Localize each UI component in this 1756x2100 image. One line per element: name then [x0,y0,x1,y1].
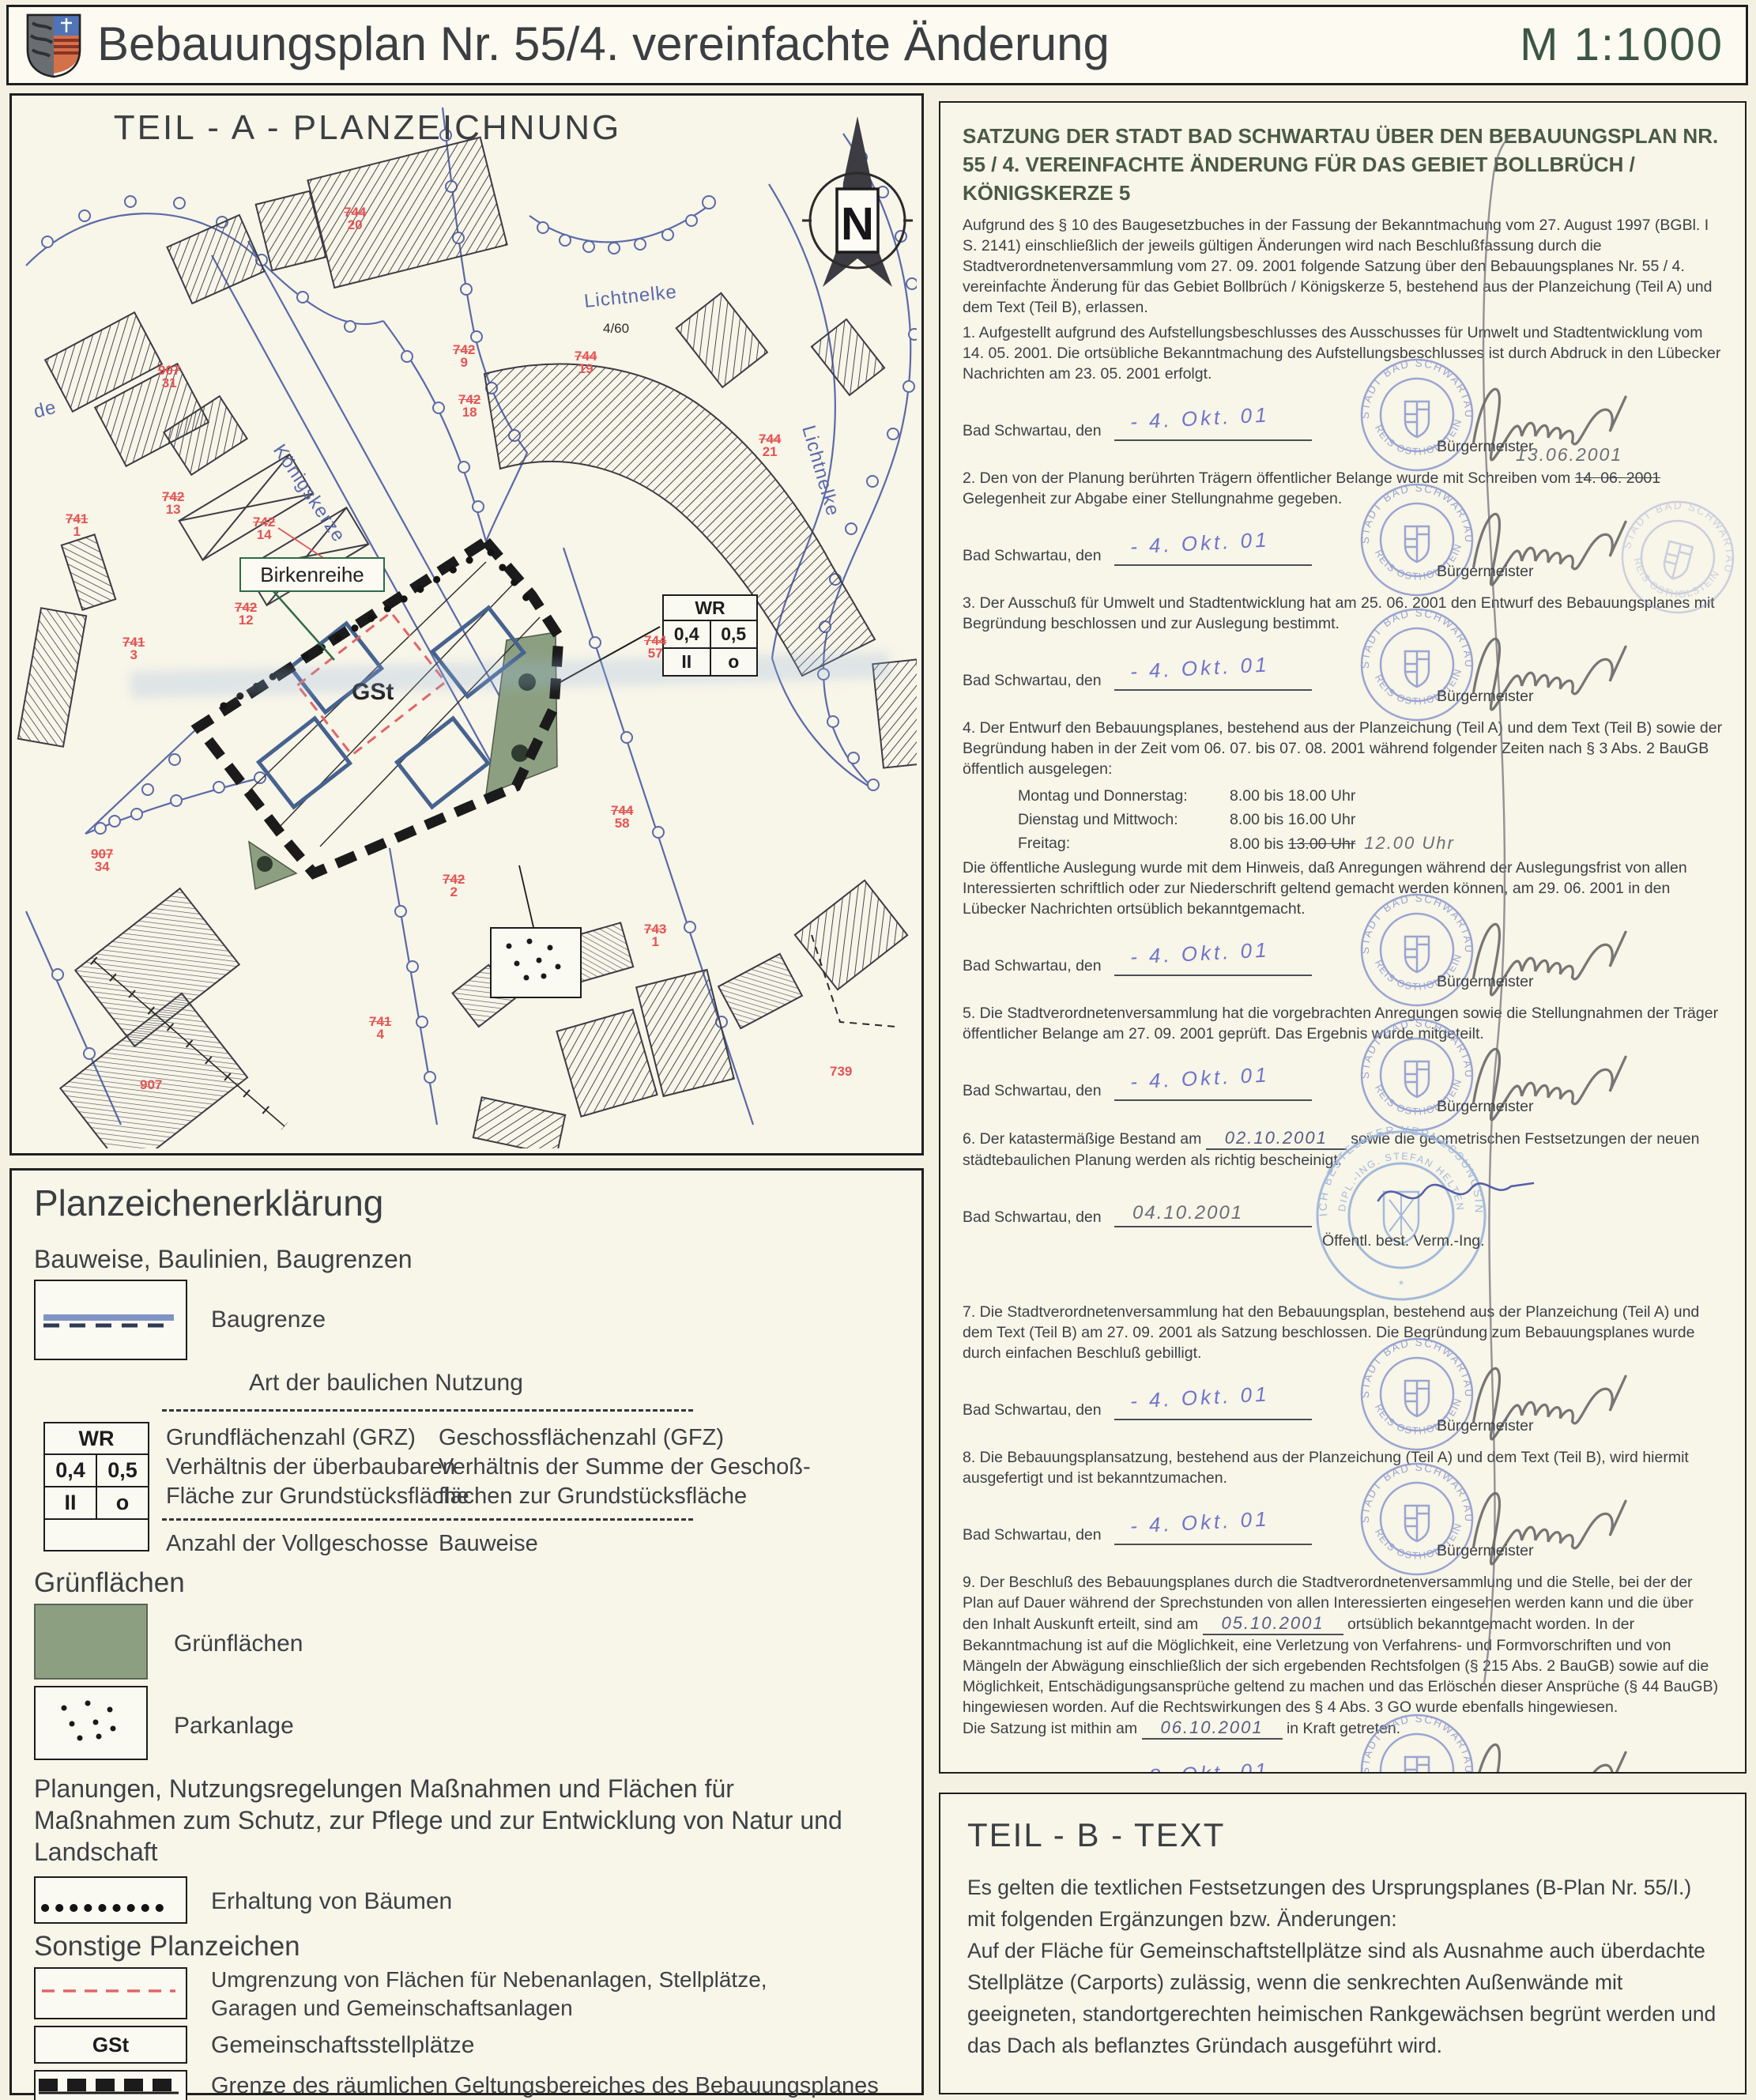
date-line [1114,439,1312,441]
opening-times: Montag und Donnerstag:8.00 bis 18.00 Uhr… [1018,784,1723,856]
parkanlage-symbol [34,1686,148,1760]
park-callout [519,865,533,927]
wr-bauweise: o [711,649,757,675]
parcel-label: 7413 [122,636,145,662]
document-title: Bebauungsplan Nr. 55/4. vereinfachte Änd… [97,17,1110,71]
north-letter: N [841,198,874,250]
legend-panel: Planzeichenerklärung Bauweise, Baulinien… [9,1168,924,2095]
signature-scrawl [1453,1722,1747,1774]
signature-block-1: Bad Schwartau, den - 4. Okt. 01 Bürgerme… [963,389,1723,460]
birkenreihe-callout [273,590,334,660]
erhaltung-symbol [34,1876,187,1924]
parcel-label: 74218 [458,394,480,419]
parcel-label: 90734 [91,848,113,873]
baugrenze-symbol [34,1280,187,1360]
parcel-label: 74212 [235,601,257,627]
teil-b-body-1: Es gelten die textlichen Festsetzungen d… [967,1872,1718,1935]
satzung-panel: SATZUNG DER STADT BAD SCHWARTAU ÜBER DEN… [939,101,1747,1774]
wr-grz: 0,4 [664,621,711,647]
place-date-label: Bad Schwartau, den [963,422,1102,440]
handwritten-date: - 4. Okt. 01 [1129,1382,1270,1413]
parcel-label: 74213 [162,491,184,516]
parkanlage-area [490,927,582,998]
art-der-nutzung-label: Art der baulichen Nutzung [249,1370,523,1397]
street-label-lichtnelke-top: Lichtnelke [583,281,678,312]
surveyor-stamp [1310,1125,1492,1306]
bauweise-label: Bauweise [439,1531,538,1557]
handwritten-date: - 4. Okt. 01 [1129,652,1270,684]
handwritten-date: - 4. Okt. 01 [1129,527,1270,559]
planungen-heading: Planungen, Nutzungsregelungen Maßnahmen … [34,1773,872,1868]
north-arrow-icon: N [802,116,913,287]
parcel-label: 7429 [453,344,475,369]
parkanlage-label: Parkanlage [174,1713,294,1740]
wr-table-map: WR 0,40,5 IIo [662,594,758,677]
umgrenzung-symbol [34,1967,187,2019]
wr-storeys: II [664,649,711,675]
parcel-label: 7411 [66,513,88,538]
handwritten-note: 13.06.2001 [1516,444,1622,466]
baugrenze-squares [258,608,523,807]
parcel-label: 74420 [344,206,366,232]
legend-title: Planzeichenerklärung [34,1182,383,1224]
flur-label: 4/60 [603,322,629,335]
parcel-label: 7414 [369,1016,391,1041]
handwritten-date-inline: 06.10.2001 [1142,1717,1283,1740]
role-label: Öffentl. best. Verm.-Ing. [1322,1232,1485,1250]
surveyor-signature [1374,1167,1539,1215]
signature-block-9: Bad Schwartau, den - 8. Okt. 01 Bürgerme… [963,1744,1723,1774]
wr-bauweise: o [97,1487,148,1518]
handwritten-date-inline: 05.10.2001 [1203,1613,1343,1635]
street-label-lichtnelke-right: Lichtnelke [797,423,844,518]
signature-block-7: Bad Schwartau, den - 4. Okt. 01 Bürgerme… [963,1368,1723,1439]
parcel-label: 74214 [253,516,275,541]
struck-date: 14. 06. 2001 [1575,469,1660,487]
city-crest-icon [23,12,85,80]
dashed-divider [162,1409,693,1412]
teil-b-body-2: Auf der Fläche für Gemeinschaftstellplät… [967,1935,1718,2061]
teil-b-title: TEIL - B - TEXT [967,1816,1718,1854]
handwritten-date: - 4. Okt. 01 [1129,1062,1270,1094]
birkenreihe-label: Birkenreihe [239,557,385,592]
gruenflaechen-heading: Grünflächen [34,1567,185,1599]
gst-symbol: GSt [34,2026,187,2064]
map-scale: M 1:1000 [1520,18,1724,71]
parcel-label: 7422 [443,873,465,899]
grz-explanation: Grundflächenzahl (GRZ) Verhältnis der üb… [166,1423,469,1511]
legend-subtitle: Bauweise, Baulinien, Baugrenzen [34,1245,413,1274]
satzung-title: SATZUNG DER STADT BAD SCHWARTAU ÜBER DEN… [963,122,1723,207]
signature-block-8: Bad Schwartau, den - 4. Okt. 01 Bürgerme… [963,1493,1723,1564]
wr-header: WR [45,1423,148,1455]
signature-block-3: Bad Schwartau, den - 4. Okt. 01 Bürgerme… [963,639,1723,710]
vollgeschosse-label: Anzahl der Vollgeschosse [166,1531,428,1557]
parcel-label: 74457 [644,635,666,660]
wr-storeys: II [45,1487,97,1518]
dashed-divider [162,1518,693,1521]
signature-block-2: Bad Schwartau, den - 4. Okt. 01 Bürgerme… [963,514,1723,585]
erhaltung-label: Erhaltung von Bäumen [211,1888,452,1915]
signature-block-5: Bad Schwartau, den - 4. Okt. 01 Bürgerme… [963,1049,1723,1120]
plan-drawing-panel: Lichtnelke Lichtnelke Königskerze de GSt… [9,93,924,1156]
scanned-plan-document: Bebauungsplan Nr. 55/4. vereinfachte Änd… [0,0,1756,2100]
struck-time: 13.00 Uhr [1288,835,1356,853]
header-bar: Bebauungsplan Nr. 55/4. vereinfachte Änd… [6,5,1748,85]
handwritten-time: 12.00 Uhr [1364,833,1455,853]
cadastral-map: Lichtnelke Lichtnelke Königskerze de GSt… [12,96,917,1148]
parcel-label: 739 [830,1065,852,1078]
satzung-intro: Aufgrund des § 10 des Baugesetzbuches in… [963,215,1723,318]
plan-title: TEIL - A - PLANZEICHNUNG [12,108,723,148]
handwritten-date: - 4. Okt. 01 [1129,937,1270,969]
handwritten-date: - 8. Okt. 01 [1129,1758,1270,1774]
wr-grz: 0,4 [45,1455,97,1486]
grenze-symbol [34,2070,187,2100]
signature-block-4: Bad Schwartau, den - 4. Okt. 01 Bürgerme… [963,924,1723,995]
gfz-explanation: Geschossflächenzahl (GFZ) Verhältnis der… [439,1423,811,1511]
wr-header: WR [664,596,756,621]
street-label-de: de [32,397,58,423]
wr-gfz: 0,5 [711,621,757,647]
signature-block-6: Bad Schwartau, den 04.10.2001 Öffentl. b… [963,1175,1723,1294]
gruenflaechen-label: Grünflächen [174,1631,303,1657]
baugrenze-label: Baugrenze [211,1306,326,1333]
wr-table-legend: WR 0,40,5 IIo [43,1422,149,1551]
parcel-label: 7431 [644,923,666,948]
teil-b-panel: TEIL - B - TEXT Es gelten die textlichen… [939,1793,1747,2094]
umgrenzung-label: Umgrenzung von Flächen für Nebenanlagen,… [211,1966,827,2023]
parcel-label: 907 [140,1079,162,1091]
handwritten-date: 04.10.2001 [1132,1202,1243,1224]
gruenflaeche-swatch [34,1604,148,1680]
parcel-label: 74419 [575,350,597,375]
handwritten-date: - 4. Okt. 01 [1129,402,1270,434]
buildings-alt-hatch [18,534,115,746]
wr-gfz: 0,5 [97,1455,148,1486]
paragraph-9: 9. Der Beschluß des Bebauungsplanes durc… [963,1572,1723,1740]
grenze-label: Grenze des räumlichen Geltungsbereiches … [211,2073,879,2099]
gst-label: Gemeinschaftsstellplätze [211,2032,475,2059]
parcel-label: 74458 [611,805,633,830]
sonstige-heading: Sonstige Planzeichen [34,1931,300,1962]
paragraph-4: 4. Der Entwurf den Bebauungsplanes, best… [963,718,1723,779]
parcel-label: 74421 [759,433,781,458]
parcel-label: 90731 [158,364,180,390]
handwritten-date: - 4. Okt. 01 [1129,1506,1270,1538]
